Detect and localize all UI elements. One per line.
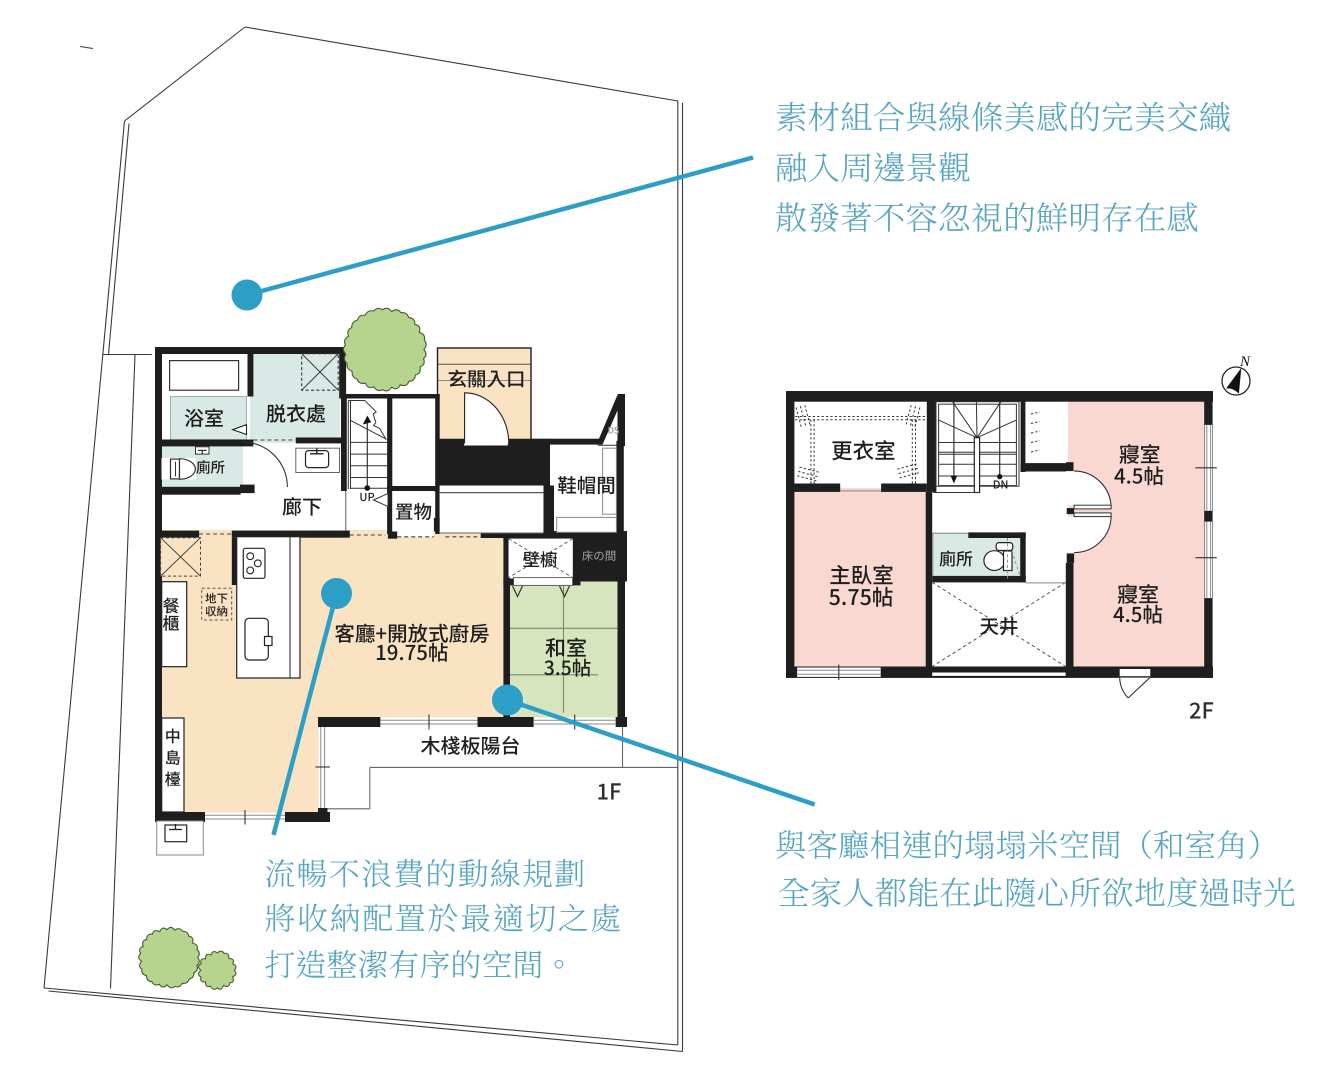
svg-text:木棧板陽台: 木棧板陽台 <box>421 730 521 759</box>
svg-text:5.75帖: 5.75帖 <box>829 581 894 612</box>
svg-text:DN: DN <box>993 477 1009 493</box>
svg-text:壁櫥: 壁櫥 <box>523 547 558 572</box>
svg-text:DS: DS <box>608 424 620 437</box>
svg-text:櫃: 櫃 <box>163 610 180 635</box>
svg-text:廁所: 廁所 <box>196 457 225 478</box>
svg-text:浴室: 浴室 <box>184 403 224 432</box>
svg-text:4.5帖: 4.5帖 <box>1114 459 1164 489</box>
svg-text:3.5帖: 3.5帖 <box>544 652 592 681</box>
svg-text:置物: 置物 <box>395 499 432 525</box>
svg-text:2F: 2F <box>1189 693 1214 725</box>
svg-text:廊下: 廊下 <box>282 491 322 520</box>
svg-text:與客廳相連的塌塌米空間（和室角）: 與客廳相連的塌塌米空間（和室角） <box>775 821 1279 866</box>
svg-text:19.75帖: 19.75帖 <box>375 636 448 666</box>
svg-text:將收納配置於最適切之處: 將收納配置於最適切之處 <box>264 894 623 939</box>
svg-text:中: 中 <box>165 723 181 747</box>
svg-text:融入周邊景觀: 融入周邊景觀 <box>775 143 971 189</box>
svg-text:流暢不浪費的動線規劃: 流暢不浪費的動線規劃 <box>264 849 586 894</box>
svg-text:散發著不容忽視的鮮明存在感: 散發著不容忽視的鮮明存在感 <box>775 194 1199 240</box>
svg-text:鞋帽間: 鞋帽間 <box>557 470 616 499</box>
svg-text:玄關入口: 玄關入口 <box>447 363 525 392</box>
svg-text:素材組合與線條美感的完美交織: 素材組合與線條美感的完美交織 <box>775 93 1231 139</box>
svg-text:収納: 収納 <box>205 604 228 620</box>
svg-text:UP: UP <box>359 489 374 505</box>
svg-text:打造整潔有序的空間。: 打造整潔有序的空間。 <box>264 940 574 985</box>
svg-text:廁所: 廁所 <box>939 545 973 570</box>
svg-text:4.5帖: 4.5帖 <box>1113 598 1163 628</box>
svg-text:床の間: 床の間 <box>582 548 617 564</box>
svg-text:脱衣處: 脱衣處 <box>266 398 326 427</box>
svg-text:更衣室: 更衣室 <box>831 434 896 465</box>
svg-text:檯: 檯 <box>165 766 181 790</box>
svg-text:天井: 天井 <box>979 611 1018 640</box>
svg-text:N: N <box>1239 354 1251 370</box>
svg-text:島: 島 <box>165 744 181 768</box>
svg-text:全家人都能在此隨心所欲地度過時光: 全家人都能在此隨心所欲地度過時光 <box>777 869 1295 915</box>
svg-text:1F: 1F <box>597 774 622 806</box>
